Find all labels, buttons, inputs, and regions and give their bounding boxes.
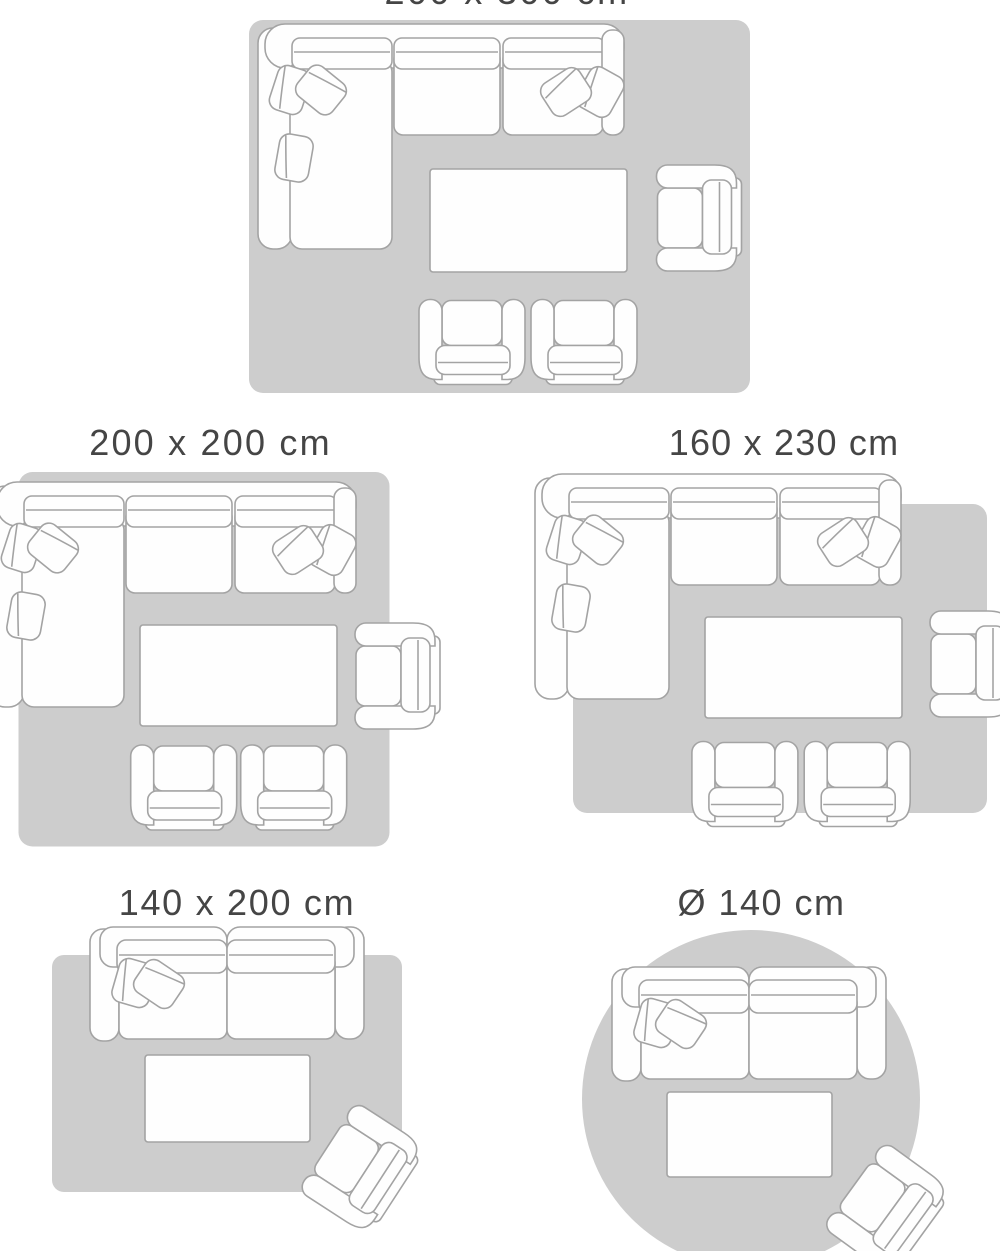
svg-text:Ø 140 cm: Ø 140 cm bbox=[677, 882, 845, 923]
svg-text:200 x 300 cm: 200 x 300 cm bbox=[385, 0, 630, 12]
svg-text:140 x 200 cm: 140 x 200 cm bbox=[119, 882, 356, 923]
svg-text:160 x 230 cm: 160 x 230 cm bbox=[669, 422, 900, 463]
svg-text:200 x 200 cm: 200 x 200 cm bbox=[89, 422, 332, 463]
